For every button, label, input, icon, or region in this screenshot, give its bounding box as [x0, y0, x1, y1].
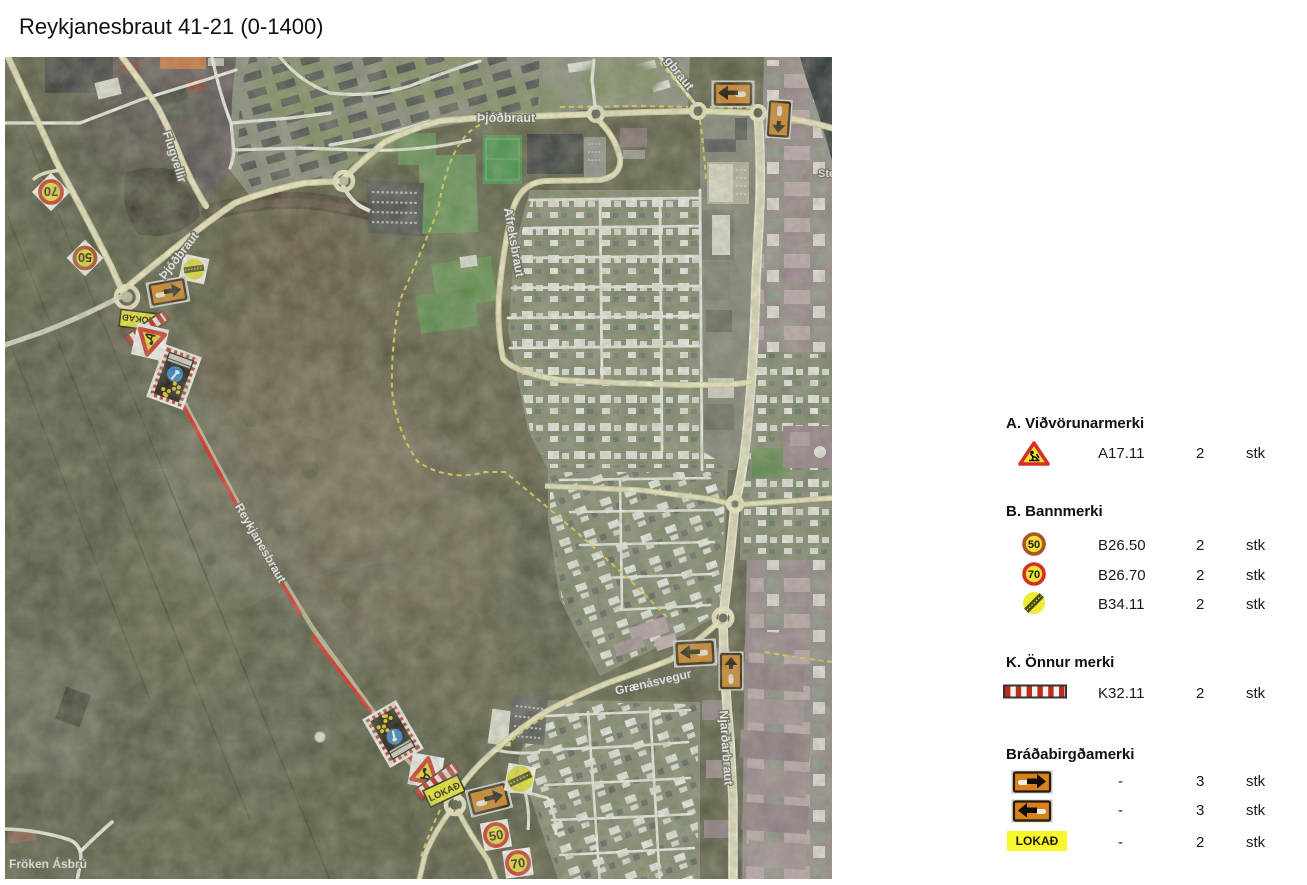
svg-text:70: 70	[1028, 569, 1040, 581]
svg-text:50: 50	[1028, 539, 1040, 551]
